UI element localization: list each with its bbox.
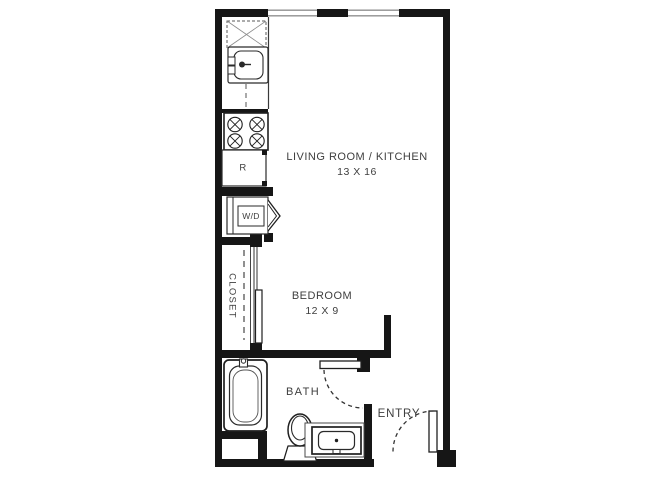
sliding-door-panel <box>256 290 263 343</box>
window-icon <box>348 10 399 16</box>
corner-cabinet-icon <box>227 21 266 48</box>
wd-bottom-wall <box>222 237 251 245</box>
right-wall <box>443 9 450 453</box>
floor-plan-drawing <box>0 0 670 480</box>
entry-label: ENTRY <box>378 408 421 420</box>
stove-icon <box>224 113 268 150</box>
closet-sliding-door <box>244 247 262 343</box>
closet-label: CLOSET <box>227 273 238 319</box>
bath-door-leaf <box>320 361 361 369</box>
bathroom-sink-icon <box>305 423 364 457</box>
floor-plan: LIVING ROOM / KITCHEN 13 X 16 BEDROOM 12… <box>0 0 670 480</box>
top-wall-mid <box>317 9 348 17</box>
entry-door-jamb <box>437 450 456 467</box>
top-wall-left <box>215 9 268 17</box>
bedroom-wall-stub <box>384 315 391 353</box>
bedroom-dimensions: 12 X 9 <box>305 305 338 317</box>
plumbing-niche-wall <box>258 439 267 460</box>
bathtub-icon <box>224 359 267 431</box>
kitchen-sink-icon <box>228 47 268 83</box>
washer-dryer-label: W/D <box>242 211 259 221</box>
bath-door <box>320 361 363 408</box>
top-wall-right <box>399 9 450 17</box>
tub-alcove-wall <box>215 431 267 439</box>
bath-label: BATH <box>286 386 320 398</box>
entry-door-leaf <box>429 411 437 452</box>
closet-jamb-top <box>250 234 262 247</box>
living-kitchen-label: LIVING ROOM / KITCHEN <box>286 151 427 163</box>
left-wall <box>215 9 222 467</box>
closet-jamb-bottom <box>250 343 262 352</box>
window-icon <box>268 10 317 16</box>
bath-door-swing-arc <box>324 370 363 408</box>
kitchen-wd-divider-wall <box>222 187 273 196</box>
living-kitchen-dimensions: 13 X 16 <box>337 166 377 178</box>
bedroom-label: BEDROOM <box>292 290 352 302</box>
refrigerator-label: R <box>239 163 246 174</box>
bath-entry-wall <box>364 404 372 461</box>
